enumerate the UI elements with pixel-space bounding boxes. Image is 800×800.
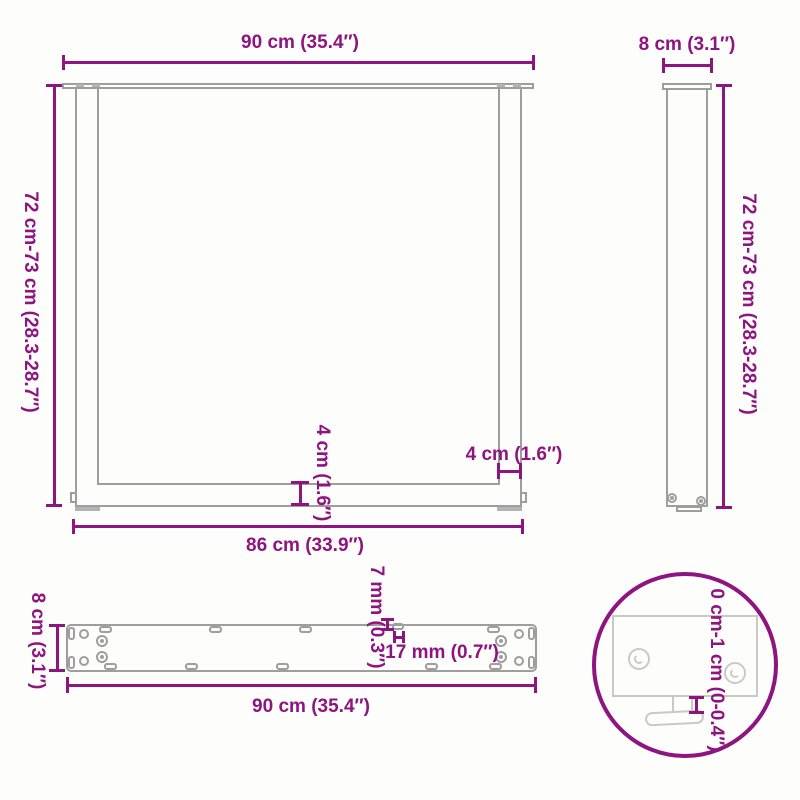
dim-cap <box>689 696 704 699</box>
detail-bolt-arc <box>634 654 644 664</box>
detail-bolt-arc <box>730 668 740 678</box>
foot-adjustment-label: 0 cm-1 cm (0-0.4″) <box>705 588 727 751</box>
dim-cap <box>689 711 704 714</box>
foot-detail-view: 0 cm-1 cm (0-0.4″) <box>0 0 800 800</box>
dimension-diagram: 90 cm (35.4″) 72 cm-73 cm (28.3-28.7″) 4… <box>0 0 800 800</box>
